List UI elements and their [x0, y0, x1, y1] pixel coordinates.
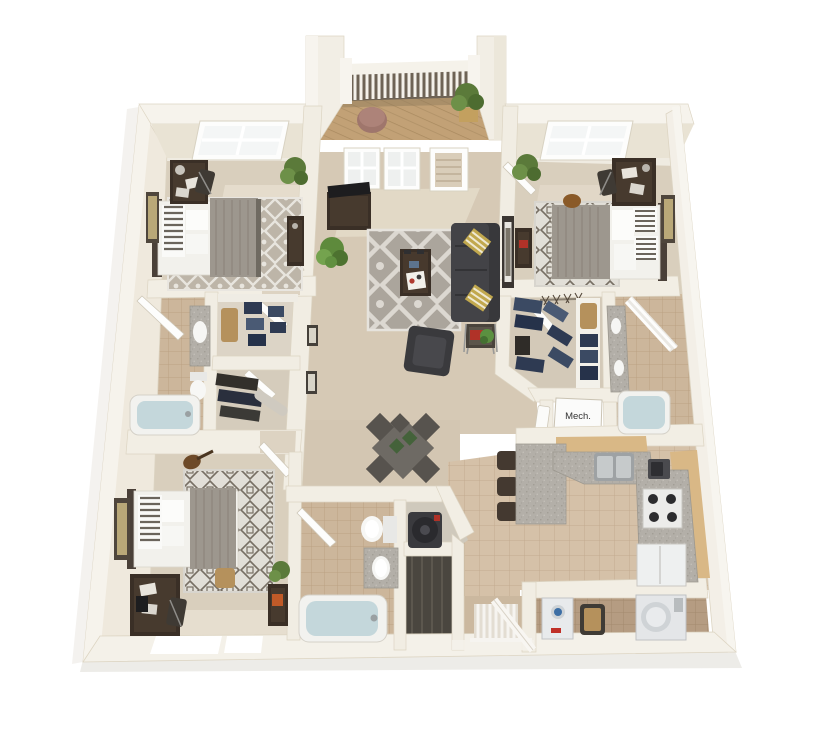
svg-text:Mech.: Mech.: [565, 411, 591, 422]
